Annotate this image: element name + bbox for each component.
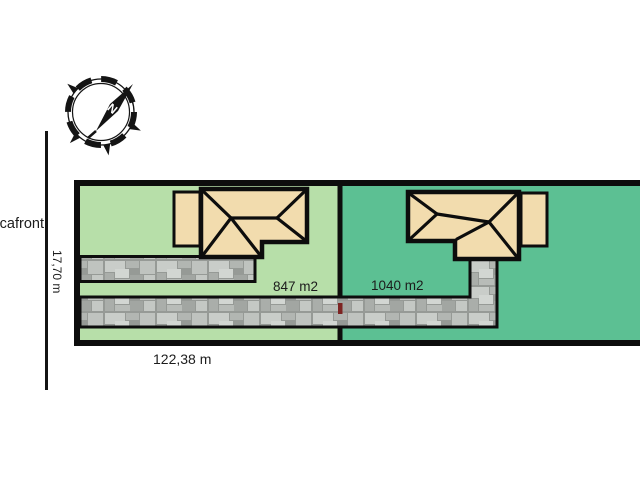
- house-right-garage: [521, 193, 547, 246]
- walkway-left-parcel: [80, 257, 255, 282]
- plot-border-top: [74, 180, 640, 186]
- parcel-left-area-label: 847 m2: [273, 280, 318, 295]
- site-plan-drawing: N: [0, 0, 640, 480]
- street-name-label: tcafront: [0, 217, 44, 233]
- width-dimension-label: 122,38 m: [153, 352, 211, 367]
- boundary-marker: [338, 303, 343, 314]
- compass-rose: N: [65, 79, 142, 156]
- street-line: [45, 131, 48, 390]
- frontage-dimension-label: 17,70 m: [50, 250, 63, 293]
- house-left-garage: [174, 192, 200, 246]
- parcel-right-area-label: 1040 m2: [371, 279, 424, 294]
- site-plan: N tcafront 17,70 m 847 m2 1040 m2 122,38…: [0, 0, 640, 480]
- compass-needle: N: [88, 84, 133, 138]
- plot-border-bottom: [74, 340, 640, 346]
